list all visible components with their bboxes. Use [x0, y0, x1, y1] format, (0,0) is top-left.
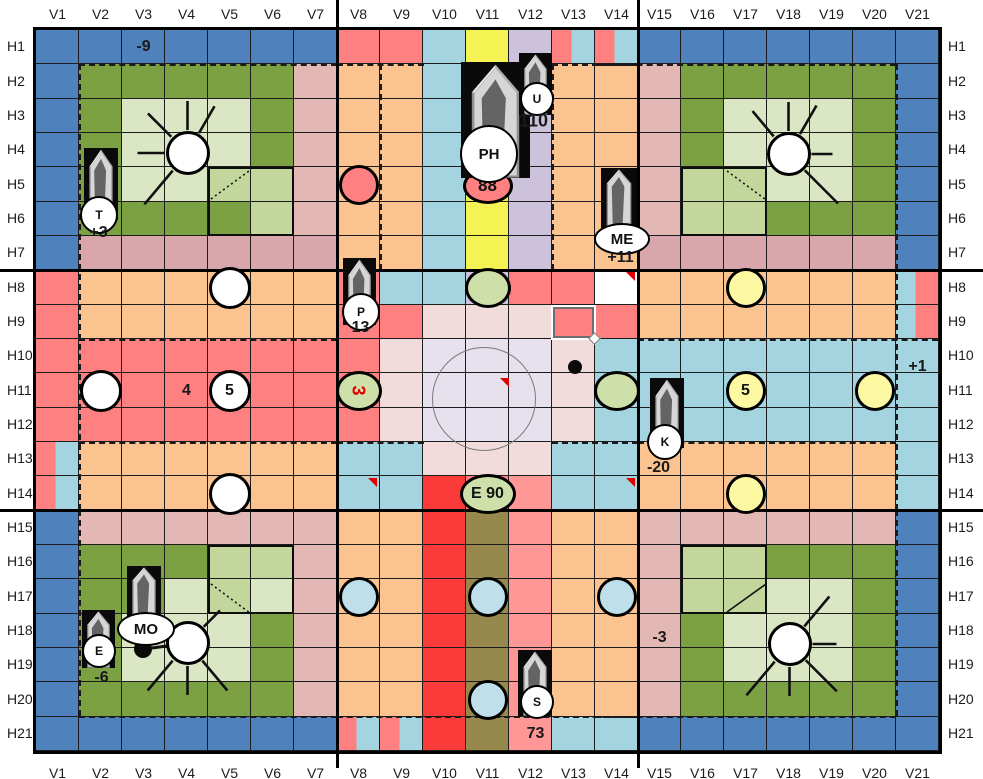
dot-marker [568, 360, 582, 374]
column-header-bottom: V7 [294, 765, 337, 779]
red-wedge-marker [500, 378, 509, 387]
column-header: V14 [595, 6, 638, 22]
column-header-bottom: V9 [380, 765, 423, 779]
crystal-label-s: S [520, 685, 554, 719]
row-header-right: H19 [948, 656, 982, 672]
crystal-label-e: E [82, 634, 116, 668]
value-text: 13 [352, 319, 370, 337]
column-header-bottom: V8 [337, 765, 380, 779]
white-pawn-label: 5 [225, 382, 234, 400]
column-header: V13 [552, 6, 595, 22]
column-header: V12 [509, 6, 552, 22]
row-header-right: H5 [948, 176, 982, 192]
blue-pawn[interactable] [468, 577, 508, 617]
value-text: +1 [908, 358, 926, 376]
column-header: V21 [896, 6, 939, 22]
crystal-label-mo: MO [117, 612, 175, 646]
column-header-bottom: V18 [767, 765, 810, 779]
row-header-right: H14 [948, 485, 982, 501]
value-text: -6 [94, 669, 108, 687]
row-header-right: H6 [948, 210, 982, 226]
yellow-pawn[interactable]: 5 [726, 371, 766, 411]
column-header: V2 [79, 6, 122, 22]
row-header-right: H7 [948, 244, 982, 260]
column-header-bottom: V19 [810, 765, 853, 779]
column-header-bottom: V6 [251, 765, 294, 779]
yellow-pawn-label: 5 [741, 382, 750, 400]
row-header-right: H10 [948, 347, 982, 363]
row-header-right: H15 [948, 519, 982, 535]
column-header: V10 [423, 6, 466, 22]
column-header: V7 [294, 6, 337, 22]
value-text: -3 [652, 629, 666, 647]
column-header-bottom: V14 [595, 765, 638, 779]
row-header-right: H12 [948, 416, 982, 432]
crystal-icon-me[interactable] [601, 168, 637, 228]
column-header-bottom: V15 [638, 765, 681, 779]
row-header-right: H2 [948, 73, 982, 89]
column-header: V4 [165, 6, 208, 22]
row-header-right: H8 [948, 279, 982, 295]
sun-icon[interactable] [768, 622, 812, 666]
salmon-pawn[interactable] [339, 165, 379, 205]
column-header: V6 [251, 6, 294, 22]
red-corner-flag [368, 478, 377, 487]
column-header-bottom: V3 [122, 765, 165, 779]
value-text: -20 [647, 459, 670, 477]
column-header: V3 [122, 6, 165, 22]
row-header-right: H21 [948, 725, 982, 741]
column-header-bottom: V12 [509, 765, 552, 779]
column-header-bottom: V2 [79, 765, 122, 779]
column-header-bottom: V5 [208, 765, 251, 779]
column-header-bottom: V21 [896, 765, 939, 779]
column-header: V11 [466, 6, 509, 22]
column-header-bottom: V4 [165, 765, 208, 779]
column-header: V18 [767, 6, 810, 22]
green-token-label: 3 [348, 385, 369, 395]
column-header-bottom: V11 [466, 765, 509, 779]
column-header-bottom: V13 [552, 765, 595, 779]
blue-pawn[interactable] [339, 577, 379, 617]
value-text: +3 [89, 224, 107, 242]
white-pawn[interactable]: 5 [209, 370, 251, 412]
row-header-right: H16 [948, 553, 982, 569]
row-header-right: H1 [948, 38, 982, 54]
row-header-right: H11 [948, 382, 982, 398]
column-header-bottom: V20 [853, 765, 896, 779]
white-pawn[interactable] [209, 267, 251, 309]
row-header-right: H3 [948, 107, 982, 123]
column-header: V19 [810, 6, 853, 22]
green-token-label: E 90 [471, 485, 504, 503]
column-header: V17 [724, 6, 767, 22]
column-header: V1 [36, 6, 79, 22]
column-header-bottom: V1 [36, 765, 79, 779]
yellow-pawn[interactable] [855, 371, 895, 411]
row-header-right: H9 [948, 313, 982, 329]
blue-pawn[interactable] [597, 577, 637, 617]
column-header: V9 [380, 6, 423, 22]
value-text: -9 [136, 38, 150, 56]
sun-icon[interactable] [166, 131, 210, 175]
column-header: V20 [853, 6, 896, 22]
row-header-right: H18 [948, 622, 982, 638]
bottom-header-clip: V1V2V3V4V5V6V7V8V9V10V11V12V13V14V15V16V… [0, 751, 983, 779]
white-pawn[interactable] [80, 370, 122, 412]
red-corner-flag [626, 272, 635, 281]
yellow-pawn[interactable] [726, 474, 766, 514]
blue-pawn[interactable] [468, 680, 508, 720]
red-corner-flag [626, 478, 635, 487]
column-header-bottom: V10 [423, 765, 466, 779]
green-token[interactable] [465, 268, 511, 308]
sun-icon[interactable] [767, 132, 811, 176]
column-header: V8 [337, 6, 380, 22]
row-header-right: H17 [948, 588, 982, 604]
crystal-label-k: K [647, 424, 683, 460]
column-header: V5 [208, 6, 251, 22]
column-header: V16 [681, 6, 724, 22]
white-pawn[interactable] [209, 473, 251, 515]
row-header-right: H4 [948, 141, 982, 157]
green-token[interactable]: 3 [336, 371, 382, 411]
green-token[interactable] [594, 371, 640, 411]
column-header-bottom: V16 [681, 765, 724, 779]
column-header-bottom: V17 [724, 765, 767, 779]
crystal-label-ph: PH [460, 125, 518, 183]
value-text: 110 [519, 111, 548, 132]
value-text: +11 [607, 249, 633, 267]
row-header-right: H20 [948, 691, 982, 707]
game-board: V1V2V3V4V5V6V7V8V9V10V11V12V13V14V15V16V… [0, 0, 983, 779]
row-header-right: H13 [948, 450, 982, 466]
value-text: 73 [527, 725, 545, 743]
value-text: 4 [182, 382, 191, 400]
column-header: V15 [638, 6, 681, 22]
yellow-pawn[interactable] [726, 268, 766, 308]
green-token[interactable]: E 90 [460, 474, 516, 514]
